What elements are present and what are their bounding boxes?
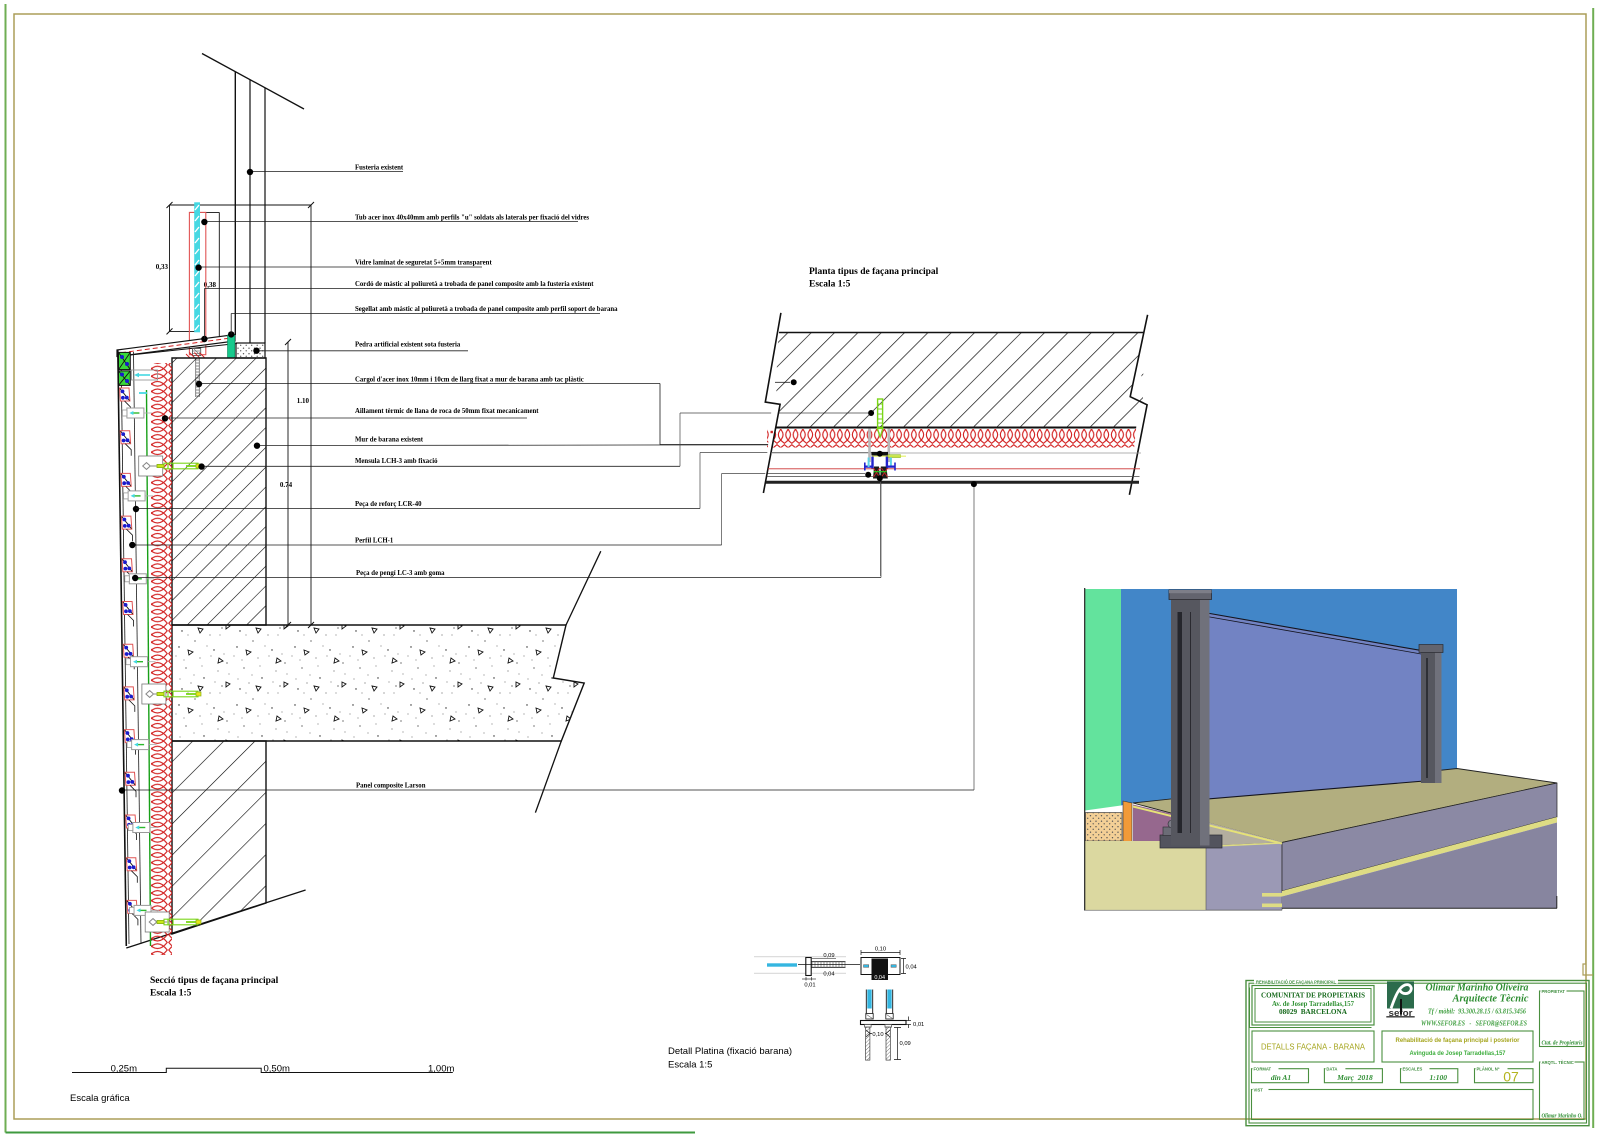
svg-text:Olimar Marinho O.: Olimar Marinho O.	[1542, 1114, 1583, 1120]
svg-text:Escala 1:5: Escala 1:5	[150, 989, 192, 999]
svg-text:DATA: DATA	[1326, 1067, 1337, 1072]
svg-text:1.10: 1.10	[297, 397, 310, 405]
svg-text:0,04: 0,04	[874, 975, 885, 981]
svg-text:Mensula LCH-3 amb fixació: Mensula LCH-3 amb fixació	[355, 458, 438, 465]
svg-text:Av. de Josep Tarradellas,157: Av. de Josep Tarradellas,157	[1272, 1001, 1355, 1008]
svg-text:Març 2018: Març 2018	[1336, 1073, 1373, 1082]
svg-text:FORMAT: FORMAT	[1254, 1067, 1272, 1072]
svg-text:0.74: 0.74	[280, 481, 293, 489]
svg-text:REHABILITACIÓ DE FAÇANA PRINCI: REHABILITACIÓ DE FAÇANA PRINCIPAL	[1256, 980, 1336, 985]
svg-text:PROPIETAT: PROPIETAT	[1542, 989, 1566, 994]
svg-text:0,50m: 0,50m	[264, 1064, 290, 1075]
svg-text:PLÀNOL Nº: PLÀNOL Nº	[1477, 1067, 1500, 1072]
svg-text:Secció tipus de façana princip: Secció tipus de façana principal	[150, 976, 279, 986]
svg-text:Cordó de màstic al poliuretà a: Cordó de màstic al poliuretà a trobada d…	[355, 281, 594, 288]
svg-text:Tf / mòbil: 93.300.28.15 / 63: Tf / mòbil: 93.300.28.15 / 63.815.3456	[1428, 1009, 1527, 1016]
svg-text:07: 07	[1503, 1069, 1519, 1085]
svg-text:Arquitecte Tècnic: Arquitecte Tècnic	[1451, 994, 1529, 1005]
svg-text:Escala 1:5: Escala 1:5	[668, 1060, 712, 1071]
svg-text:Pedra artificial existent sota: Pedra artificial existent sota fusteria	[355, 342, 461, 349]
svg-text:DETALLS FAÇANA - BARANA: DETALLS FAÇANA - BARANA	[1261, 1043, 1366, 1052]
svg-text:1:100: 1:100	[1430, 1073, 1448, 1082]
svg-text:0,04: 0,04	[906, 965, 918, 971]
svg-text:0,01: 0,01	[804, 983, 815, 989]
svg-text:ESCALES: ESCALES	[1403, 1067, 1423, 1072]
svg-text:Peça de reforç LCR-40: Peça de reforç LCR-40	[355, 501, 422, 508]
svg-text:0,01: 0,01	[913, 1022, 924, 1028]
svg-text:0,10: 0,10	[875, 947, 886, 953]
svg-text:Rehabilitació de façana princi: Rehabilitació de façana principal i post…	[1396, 1037, 1521, 1044]
svg-text:Aillament tèrmic de llana de r: Aillament tèrmic de llana de roca de 50m…	[355, 408, 539, 415]
svg-text:Perfil LCH-1: Perfil LCH-1	[355, 538, 394, 545]
svg-text:08029 BARCELONA: 08029 BARCELONA	[1279, 1008, 1348, 1016]
svg-text:Fusteria existent: Fusteria existent	[355, 165, 404, 172]
svg-text:Planta tipus de façana princip: Planta tipus de façana principal	[809, 267, 939, 277]
svg-text:0,10: 0,10	[872, 1032, 883, 1038]
svg-text:VIST: VIST	[1254, 1087, 1264, 1092]
svg-text:din A1: din A1	[1271, 1073, 1291, 1082]
svg-text:Escala 1:5: Escala 1:5	[809, 280, 851, 290]
svg-text:Avinguda de Josep Tarradellas,: Avinguda de Josep Tarradellas,157	[1410, 1050, 1507, 1057]
svg-text:Peça de pengí LC-3 amb goma: Peça de pengí LC-3 amb goma	[356, 570, 445, 577]
svg-text:0,33: 0,33	[156, 263, 169, 271]
svg-text:Vidre laminat de seguretat 5+5: Vidre laminat de seguretat 5+5mm transpa…	[355, 260, 492, 267]
svg-text:Detall Platina (fixació barana: Detall Platina (fixació barana)	[668, 1046, 792, 1057]
svg-text:1,00m: 1,00m	[428, 1064, 454, 1075]
svg-text:WWW.SEFOR.ES - SEFOR@SEFOR: WWW.SEFOR.ES - SEFOR@SEFOR.ES	[1421, 1021, 1527, 1028]
svg-text:0,04: 0,04	[823, 972, 835, 978]
svg-text:0,09: 0,09	[900, 1041, 911, 1047]
svg-text:Escala gráfica: Escala gráfica	[70, 1093, 130, 1104]
svg-text:ARQTL. TÈCNIC: ARQTL. TÈCNIC	[1542, 1060, 1574, 1065]
svg-text:Panel composite Larson: Panel composite Larson	[356, 783, 426, 790]
svg-text:Olimar Marinho Oliveira: Olimar Marinho Oliveira	[1426, 983, 1529, 994]
svg-text:Ctat. de Propietaris: Ctat. de Propietaris	[1542, 1041, 1584, 1047]
svg-text:Segellat amb màstic al poliure: Segellat amb màstic al poliuretà a troba…	[355, 306, 618, 313]
svg-text:Tub acer inox 40x40mm amb perf: Tub acer inox 40x40mm amb perfils "u" so…	[355, 215, 589, 222]
svg-text:0,25m: 0,25m	[111, 1064, 137, 1075]
svg-text:Mur de barana existent: Mur de barana existent	[355, 437, 424, 444]
svg-text:Cargol d'acer inox 10mm i 10cm: Cargol d'acer inox 10mm i 10cm de llarg …	[355, 377, 584, 384]
svg-text:COMUNITAT DE PROPIETARIS: COMUNITAT DE PROPIETARIS	[1261, 991, 1365, 1000]
svg-text:0,09: 0,09	[823, 953, 834, 959]
